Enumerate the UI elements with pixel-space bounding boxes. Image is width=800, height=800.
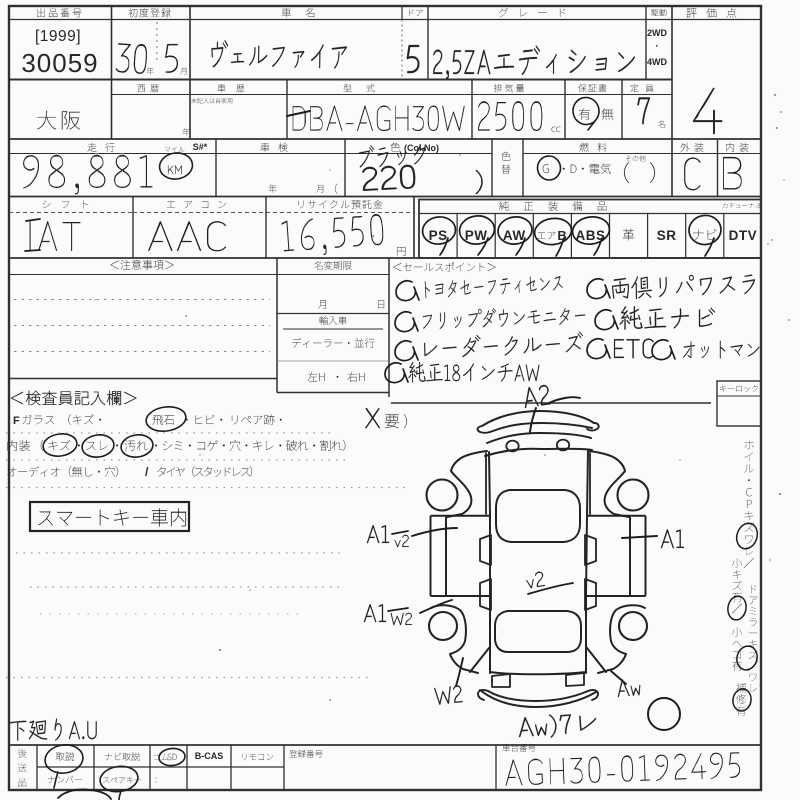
svg-text:DTV: DTV (729, 228, 758, 243)
svg-text:F: F (13, 415, 20, 427)
svg-text:SR: SR (657, 228, 677, 243)
svg-text:PS: PS (429, 228, 448, 243)
svg-text:30059: 30059 (21, 48, 98, 78)
svg-text:S#*: S#* (193, 142, 208, 152)
svg-text:[1999]: [1999] (35, 28, 81, 45)
svg-text:2WD: 2WD (647, 28, 668, 38)
svg-text:·: · (655, 41, 658, 52)
svg-text:PW: PW (465, 228, 488, 243)
svg-text:AW: AW (503, 228, 526, 243)
svg-text:B-CAS: B-CAS (195, 751, 224, 761)
svg-text:4WD: 4WD (647, 57, 668, 67)
svg-text:/: / (145, 465, 149, 479)
svg-text:(Col.No): (Col.No) (404, 143, 439, 153)
